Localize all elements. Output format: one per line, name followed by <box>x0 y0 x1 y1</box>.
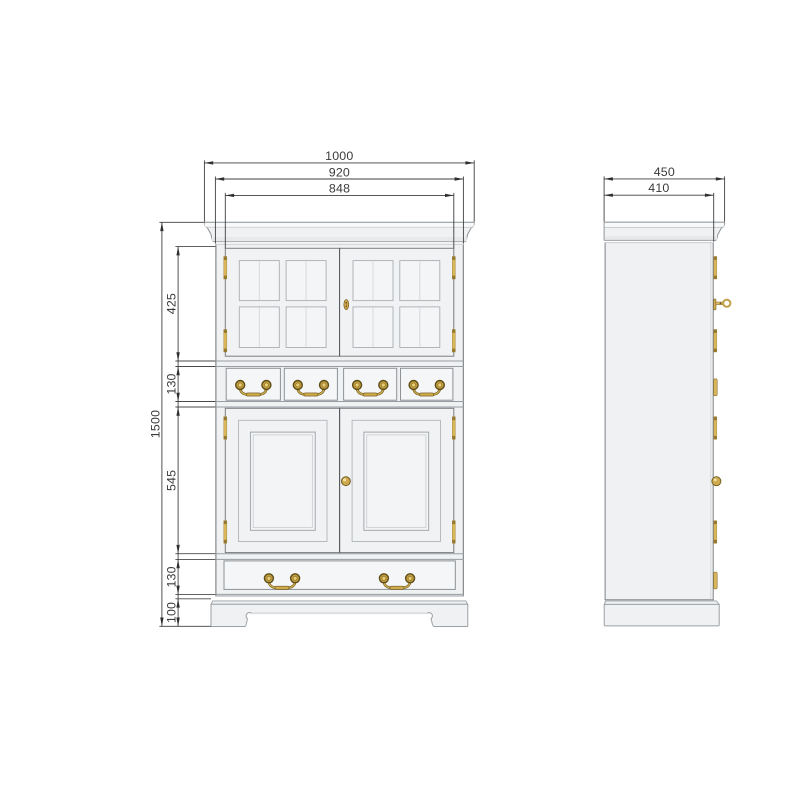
svg-text:1000: 1000 <box>325 149 353 163</box>
svg-text:130: 130 <box>165 566 179 587</box>
svg-text:100: 100 <box>165 602 179 623</box>
svg-text:920: 920 <box>329 165 350 179</box>
svg-text:410: 410 <box>648 181 669 195</box>
svg-text:848: 848 <box>329 182 350 196</box>
svg-text:1500: 1500 <box>149 410 163 438</box>
svg-text:450: 450 <box>654 165 675 179</box>
svg-text:130: 130 <box>165 373 179 394</box>
svg-text:545: 545 <box>165 470 179 491</box>
svg-text:425: 425 <box>165 293 179 314</box>
